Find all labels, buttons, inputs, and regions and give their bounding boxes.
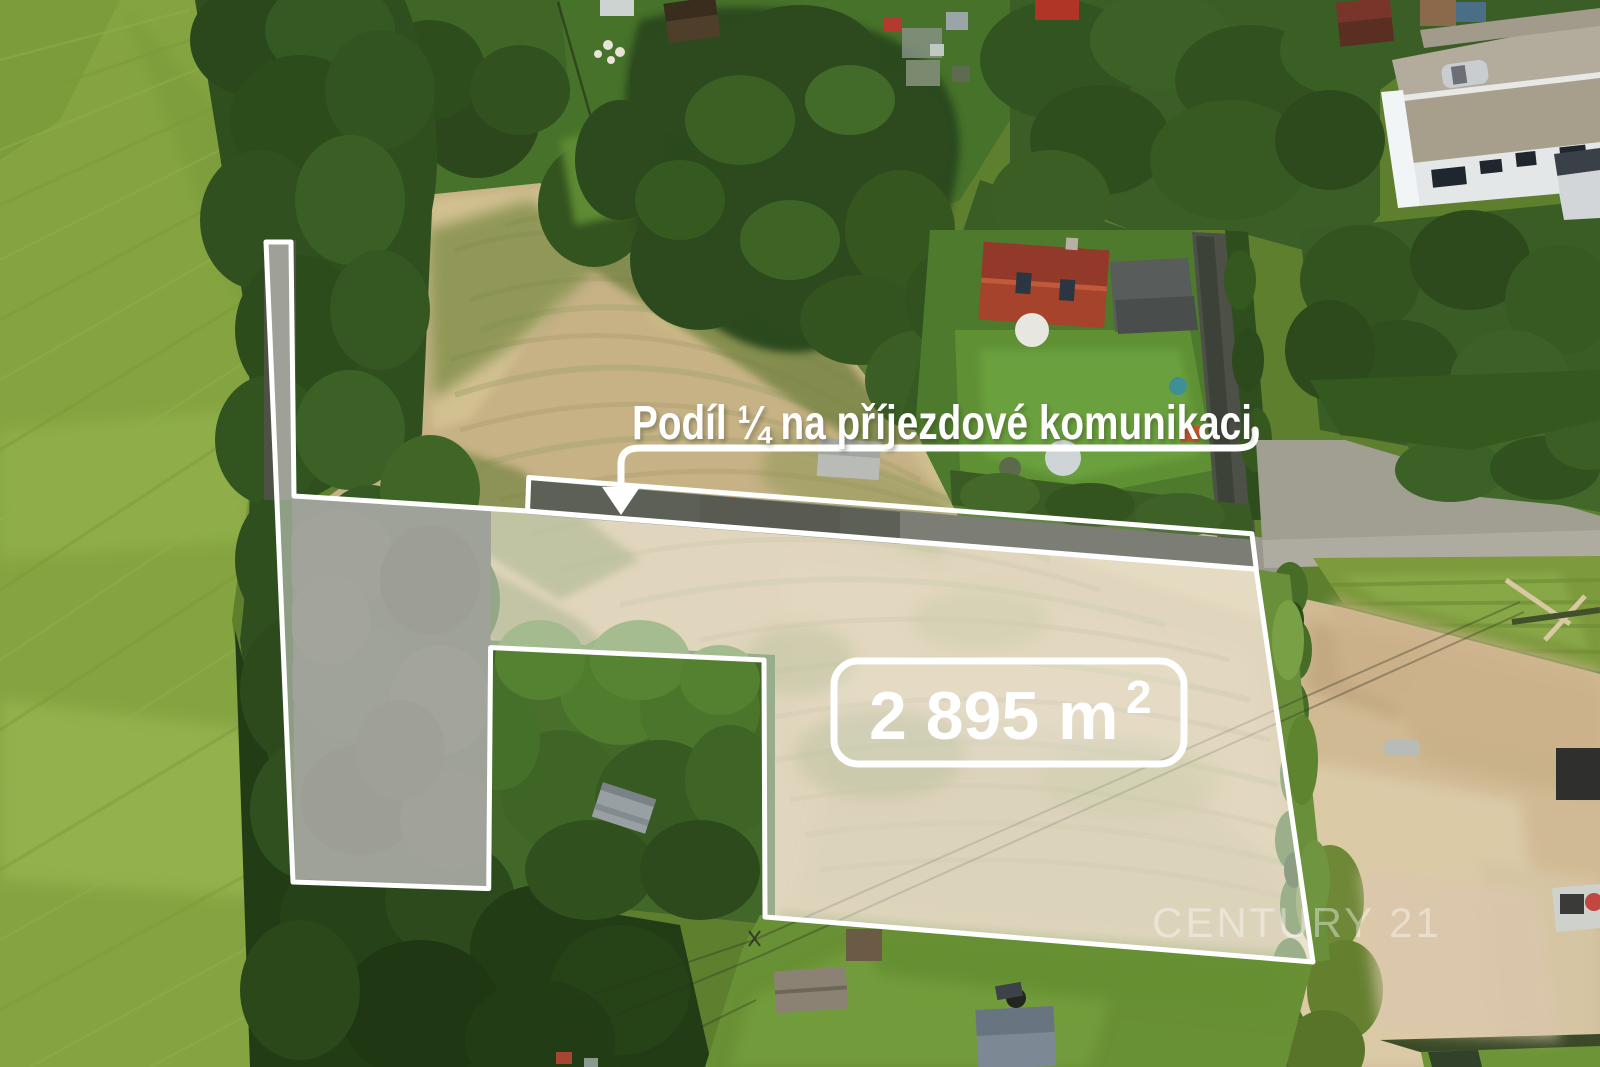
svg-text:Podíl ¼ na příjezdové komunika: Podíl ¼ na příjezdové komunikaci [632,397,1252,450]
svg-text:2: 2 [1126,671,1152,723]
svg-text:2 895 m: 2 895 m [869,678,1119,754]
svg-text:CENTURY 21: CENTURY 21 [1152,899,1442,946]
